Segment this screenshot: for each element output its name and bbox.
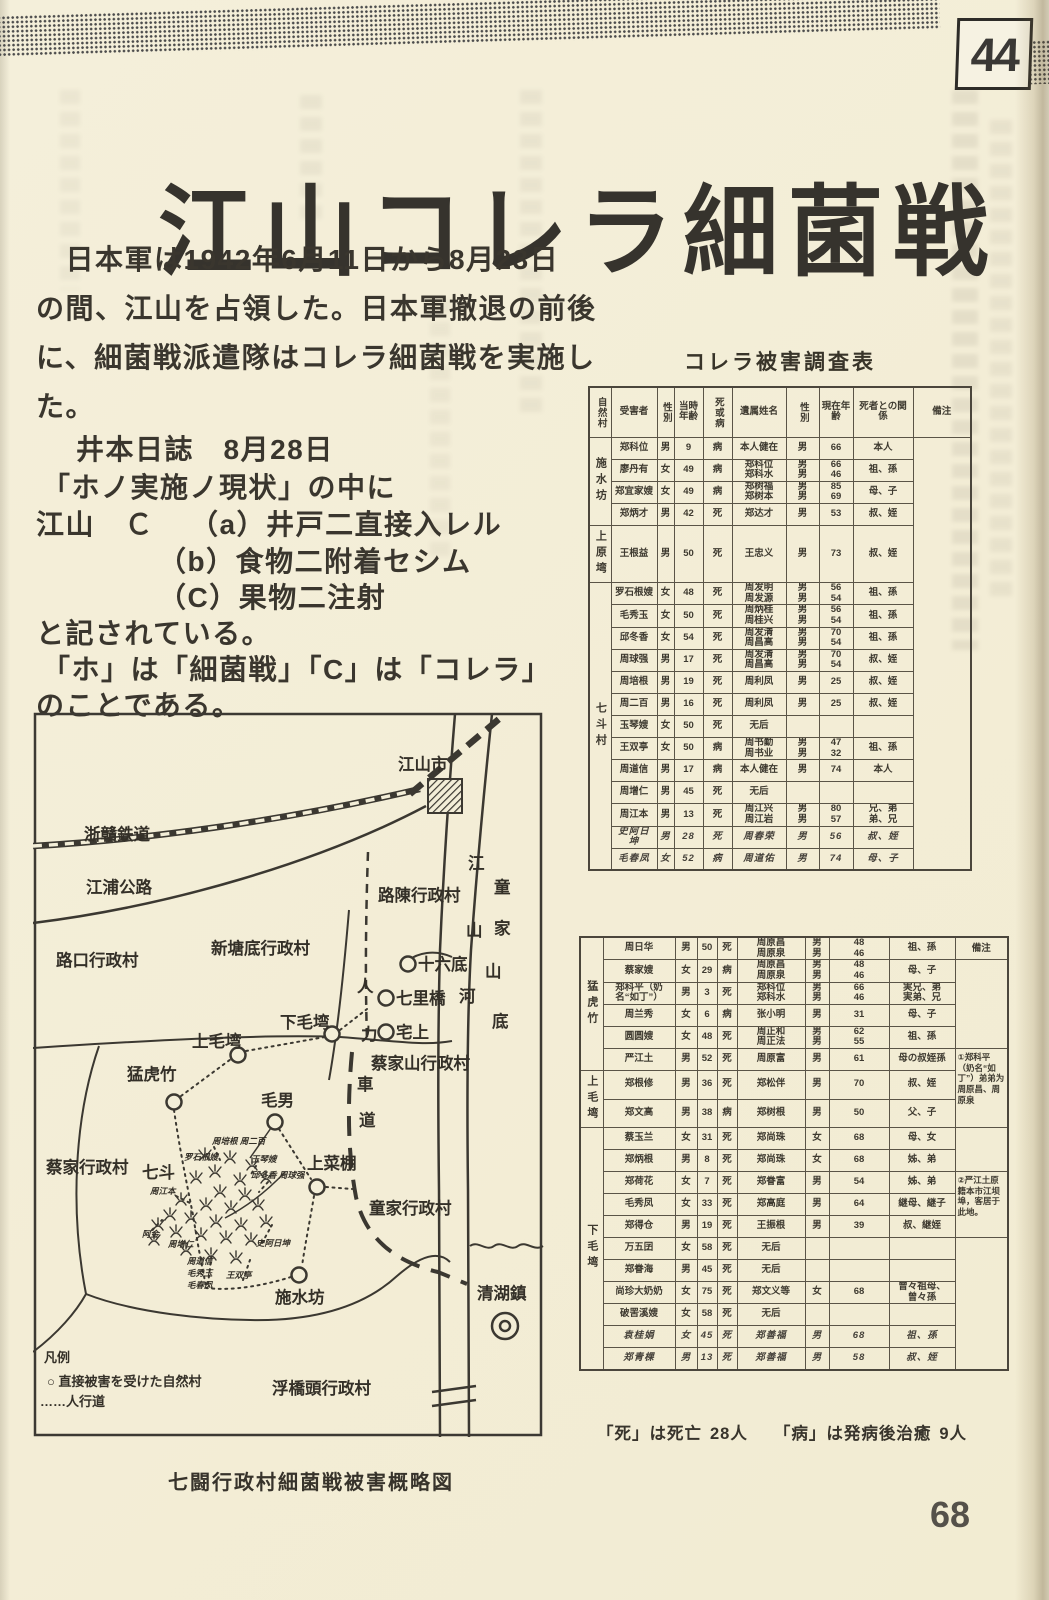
victim-sex: 女 <box>657 716 674 738</box>
grave-mound-symbol <box>200 1198 212 1210</box>
survivor-age <box>829 1304 889 1326</box>
survivor-names: 郑眷富 <box>737 1172 805 1194</box>
survivor-names: 本人健在 <box>732 437 786 459</box>
victim-age: 28 <box>674 826 703 848</box>
cart-road-label-char: 力 <box>361 1024 378 1044</box>
survivor-sex: 男男 <box>786 627 819 649</box>
victim-sex: 男 <box>675 937 697 960</box>
survivor-age: 8057 <box>819 804 853 826</box>
survivor-names: 周道佑 <box>732 848 786 870</box>
column-header: 死者との関係 <box>853 387 913 437</box>
fate: 死 <box>703 526 732 583</box>
survivor-names: 郑科位郑科水 <box>737 982 805 1004</box>
village-group-label: 上毛塆 <box>580 1071 603 1128</box>
grave-mound-symbol <box>235 1218 247 1230</box>
table-row: 郑青棵男13死郑善福男58叔、姪 <box>580 1348 1008 1370</box>
fate: 死 <box>717 1049 737 1071</box>
survivor-names: 周发清周昌高 <box>732 627 786 649</box>
survivor-age <box>819 716 853 738</box>
victim-age: 17 <box>674 760 703 782</box>
grave-mound-symbol <box>225 1201 237 1213</box>
town-double-circle <box>492 1313 518 1339</box>
region-label: 蔡家行政村 <box>45 1157 129 1177</box>
survivor-names: 无后 <box>737 1238 805 1260</box>
jiangshan-city-marker <box>428 779 462 813</box>
victim-name: 蔡家嫂 <box>603 960 675 982</box>
fate: 死 <box>717 1026 737 1048</box>
victim-name: 周江本 <box>611 804 657 826</box>
survivor-sex: 女 <box>805 1150 829 1172</box>
fate: 病 <box>703 481 732 503</box>
victim-name: 郑炳根 <box>603 1150 675 1172</box>
diary-item-label: （a） <box>190 509 266 540</box>
relation: 叔、姪 <box>853 694 913 716</box>
fate: 死 <box>717 982 737 1004</box>
fate: 死 <box>703 605 732 627</box>
footpath-dotted <box>302 1196 314 1266</box>
damage-map: 江山市浙贛鉄道江浦公路路陳行政村路口行政村新塘底行政村蔡家山行政村蔡家行政村七斗… <box>33 712 545 1440</box>
victim-sex: 男 <box>657 649 674 671</box>
notes-cell: ①郑科平（奶名“如丁”）弟弟为周原昌、周原泉 <box>955 1049 1008 1128</box>
victim-age: 6 <box>697 1004 717 1026</box>
victim-age: 8 <box>697 1150 717 1172</box>
fate: 死 <box>717 1128 737 1150</box>
victim-sex: 男 <box>657 804 674 826</box>
river-label-char: 江 <box>468 854 485 873</box>
victim-name: 郑眷海 <box>603 1260 675 1282</box>
victim-name: 郑得仓 <box>603 1216 675 1238</box>
survivor-names: 郑善福 <box>737 1348 805 1370</box>
river-label-char: 河 <box>459 987 476 1006</box>
victim-name: 周日华 <box>603 937 675 960</box>
line-label: 浙贛鉄道 <box>84 824 151 844</box>
notes-cell: 備注 <box>955 937 1008 960</box>
illness-label: 「病」は発病後治癒 <box>774 1425 932 1443</box>
diary-list-line-a: 江山 Ｃ（a）井戸二直接入レル <box>36 503 502 543</box>
footpath-dotted <box>181 1059 231 1096</box>
fate: 病 <box>717 1004 737 1026</box>
victim-age: 19 <box>674 672 703 694</box>
survivor-names: 周原富 <box>737 1049 805 1071</box>
victim-age: 54 <box>674 627 703 649</box>
survivor-names: 本人健在 <box>732 760 786 782</box>
survivor-names: 周发清周昌高 <box>732 649 786 671</box>
survivor-names: 郑文义等 <box>737 1282 805 1304</box>
cluster-victim-name: 周培根 周二百 <box>211 1136 267 1146</box>
cluster-victim-name: 毛春凤 <box>187 1280 214 1290</box>
survivor-sex: 男 <box>805 1194 829 1216</box>
map-caption: 七闘行政村細菌戦被害概略図 <box>168 1466 454 1495</box>
village-circle <box>379 1025 394 1040</box>
victim-name: 万五囝 <box>603 1238 675 1260</box>
survivor-names: 郑尚珠 <box>737 1128 805 1150</box>
chapter-number: 44 <box>970 27 1018 82</box>
cluster-victim-name: 毛秀玉 <box>187 1268 214 1278</box>
table-header-row: 自然村受害者性別当時年齢死或病遺属姓名性別現在年齢死者との関係備注 <box>589 387 971 437</box>
column-header: 備注 <box>913 387 971 437</box>
survivor-sex: 男 <box>805 1099 829 1128</box>
victim-age: 13 <box>697 1348 717 1370</box>
victim-sex: 男 <box>675 1049 697 1071</box>
survivor-age: 7054 <box>819 649 853 671</box>
survivor-sex: 男男 <box>805 960 829 982</box>
victim-sex: 女 <box>657 738 674 760</box>
survivor-sex: 男男 <box>805 982 829 1004</box>
survivor-sex: 男男 <box>805 937 829 960</box>
survivor-names: 郑善福 <box>737 1326 805 1348</box>
victim-age: 38 <box>697 1099 717 1128</box>
survivor-sex: 男 <box>805 1004 829 1026</box>
page-number: 68 <box>930 1494 970 1536</box>
map-frame <box>35 714 541 1435</box>
death-count: 28人 <box>710 1425 748 1443</box>
survivor-sex: 男 <box>805 1216 829 1238</box>
notes-cell <box>913 437 971 870</box>
survivor-age: 74 <box>819 848 853 870</box>
victim-sex: 男 <box>657 760 674 782</box>
cluster-victim-name: 周江本 <box>149 1186 177 1196</box>
grave-mound-symbol <box>234 1173 246 1185</box>
notes-cell <box>955 1128 1008 1172</box>
table-row: 袁桂娟女45死郑善福男68祖、孫 <box>580 1326 1008 1348</box>
victim-age: 45 <box>697 1260 717 1282</box>
cluster-victim-name: 王双亭 <box>226 1270 253 1280</box>
halftone-band <box>0 0 940 58</box>
village-label: 毛男 <box>261 1090 294 1110</box>
relation: 母、女 <box>889 1128 955 1150</box>
victim-sex: 女 <box>675 1194 697 1216</box>
column-header: 性別 <box>657 387 674 437</box>
survivor-names: 周发明周发源 <box>732 583 786 605</box>
fate: 死 <box>703 694 732 716</box>
stream-wavy-line <box>470 1244 543 1247</box>
page-left-edge-shadow <box>0 0 10 1600</box>
victim-age: 7 <box>697 1172 717 1194</box>
grave-mound-symbol <box>185 1211 197 1223</box>
diary-outro: と記されている。 <box>36 612 271 652</box>
village-label: 宅上 <box>396 1022 429 1042</box>
survivor-age: 58 <box>829 1348 889 1370</box>
relation: 祖、孫 <box>853 583 913 605</box>
survey-table: 猛虎竹周日华男50死周原昌周原泉男男4846祖、孫備注蔡家嫂女29病周原昌周原泉… <box>579 936 1009 1371</box>
survivor-sex <box>805 1238 829 1260</box>
survivor-age: 5654 <box>819 605 853 627</box>
survivor-names: 无后 <box>732 716 786 738</box>
victim-name: 王根益 <box>611 526 657 583</box>
paragraph-line: の間、江山を占領した。日本軍撤退の前後 <box>36 287 597 327</box>
survivor-names: 郑尚珠 <box>737 1150 805 1172</box>
village-group-label: 上原塆 <box>589 526 611 583</box>
column-header: 死或病 <box>703 387 732 437</box>
victim-name: 廖丹有 <box>611 459 657 481</box>
survivor-names: 周原昌周原泉 <box>737 960 805 982</box>
fate: 死 <box>703 716 732 738</box>
diary-item-text: 果物二注射 <box>239 582 387 613</box>
survivor-sex: 男 <box>786 504 819 526</box>
grave-mound-symbol <box>214 1185 226 1197</box>
victim-age: 29 <box>697 960 717 982</box>
survivor-sex: 男 <box>786 437 819 459</box>
scanned-book-page: 44 江山コレラ細菌戦 日本軍は1942年6月11日から8月23日 の間、江山を… <box>0 0 1049 1600</box>
region-label: 七斗 <box>142 1163 175 1182</box>
survivor-age: 25 <box>819 672 853 694</box>
relation: 兄、弟弟、兄 <box>853 804 913 826</box>
survivor-names: 郑松伴 <box>737 1071 805 1100</box>
column-header: 当時年齢 <box>674 387 703 437</box>
survivor-sex: 男 <box>805 1348 829 1370</box>
victim-sex: 男 <box>675 1216 697 1238</box>
relation <box>889 1260 955 1282</box>
river-label-char: 童 <box>494 877 511 897</box>
survivor-sex <box>805 1304 829 1326</box>
survivor-age: 56 <box>819 826 853 848</box>
table-footnote: 「死」は死亡28人「病」は発病後治癒9人 <box>597 1420 975 1444</box>
survivor-sex: 男 <box>786 848 819 870</box>
survivor-names: 郑达才 <box>732 504 786 526</box>
relation: 祖、孫 <box>853 605 913 627</box>
fate: 死 <box>703 804 732 826</box>
fate: 死 <box>717 1238 737 1260</box>
village-group-label: 下毛塆 <box>580 1128 603 1370</box>
victim-name: 郑炳才 <box>611 504 657 526</box>
grave-mound-symbol <box>170 1225 182 1237</box>
cluster-victim-name: 邱冬香 周球强 <box>251 1170 306 1180</box>
village-label: 上菜棚 <box>307 1153 357 1173</box>
victim-age: 45 <box>697 1326 717 1348</box>
survivor-sex: 男男 <box>786 459 819 481</box>
relation: 祖、孫 <box>853 738 913 760</box>
victim-age: 48 <box>674 583 703 605</box>
fate: 死 <box>717 1071 737 1100</box>
victim-age: 45 <box>674 782 703 804</box>
cart-road-label-char: 道 <box>359 1110 376 1130</box>
cart-road-label-char: 車 <box>357 1074 374 1094</box>
survivor-age: 68 <box>829 1326 889 1348</box>
victim-name: 郑宜家嫂 <box>611 481 657 503</box>
table-row: 万五囝女58死无后 <box>580 1238 1008 1260</box>
fate: 死 <box>717 1194 737 1216</box>
survey-table-title: コレラ被害調査表 <box>684 346 876 376</box>
survivor-sex: 男 <box>805 1172 829 1194</box>
survivor-age: 6255 <box>829 1026 889 1048</box>
column-header: 現在年齢 <box>819 387 853 437</box>
survivor-age: 4846 <box>829 937 889 960</box>
table-row: 猛虎竹周日华男50死周原昌周原泉男男4846祖、孫備注 <box>580 937 1008 960</box>
victim-name: 周二百 <box>611 694 657 716</box>
survivor-age <box>829 1260 889 1282</box>
relation: 叔、姪 <box>889 1071 955 1100</box>
village-circle <box>310 1180 325 1195</box>
region-label: 浮橋頭行政村 <box>272 1378 372 1398</box>
relation <box>853 716 913 738</box>
victim-age: 36 <box>697 1071 717 1100</box>
survivor-names: 周江兴周江岩 <box>732 804 786 826</box>
survivor-sex: 男男 <box>786 738 819 760</box>
victim-age: 50 <box>674 738 703 760</box>
table-row: 郑炳根男8死郑尚珠女68姊、弟 <box>580 1150 1008 1172</box>
survivor-sex: 女 <box>805 1282 829 1304</box>
relation: 母、子 <box>889 1004 955 1026</box>
table-row: 尚珍大奶奶女75死郑文义等女68曾々祖母、曾々孫 <box>580 1282 1008 1304</box>
victim-sex: 女 <box>675 1004 697 1026</box>
victim-sex: 女 <box>675 1282 697 1304</box>
victim-name: 郑青棵 <box>603 1348 675 1370</box>
survivor-names: 王振根 <box>737 1216 805 1238</box>
victim-name: 尚珍大奶奶 <box>603 1282 675 1304</box>
survivor-names: 周正和周正法 <box>737 1026 805 1048</box>
survivor-sex: 男男 <box>786 481 819 503</box>
relation: 叔、姪 <box>889 1348 955 1370</box>
diary-heading: 井本日誌 8月28日 <box>76 428 334 468</box>
village-label: 猛虎竹 <box>126 1064 177 1084</box>
survivor-sex: 男男 <box>805 1026 829 1048</box>
relation: 姊、弟 <box>889 1150 955 1172</box>
fate: 死 <box>717 1150 737 1172</box>
village-label: 下毛塆 <box>280 1012 330 1032</box>
river-label-char: 山 <box>466 921 483 940</box>
village-circle <box>268 1115 283 1130</box>
village-group-label: 施水坊 <box>589 437 611 526</box>
survivor-sex: 男 <box>786 526 819 583</box>
victim-name: 袁桂娟 <box>603 1326 675 1348</box>
paragraph-line: 日本軍は1942年6月11日から8月23日 <box>36 238 559 278</box>
victim-sex: 男 <box>675 1348 697 1370</box>
victim-age: 9 <box>674 437 703 459</box>
relation: 叔、姪 <box>853 672 913 694</box>
survivor-sex <box>786 716 819 738</box>
relation: 曾々祖母、曾々孫 <box>889 1282 955 1304</box>
fate: 死 <box>703 672 732 694</box>
victim-name: 史阿日坤 <box>611 826 657 848</box>
village-circle <box>401 957 416 972</box>
relation <box>853 782 913 804</box>
grave-mound-symbol <box>164 1208 176 1220</box>
survivor-sex: 男男 <box>786 605 819 627</box>
victim-sex: 女 <box>657 481 674 503</box>
fate: 死 <box>717 1282 737 1304</box>
table-row: 郑眷海男45死无后 <box>580 1260 1008 1282</box>
victim-age: 49 <box>674 481 703 503</box>
diary-list-line-c: （C）果物二注射 <box>158 576 386 616</box>
victim-name: 周兰秀 <box>603 1004 675 1026</box>
cart-road-label-char: 人 <box>357 977 374 996</box>
grave-mound-symbol <box>190 1171 202 1183</box>
survivor-names: 郑树福郑树本 <box>732 481 786 503</box>
survivor-age: 68 <box>829 1282 889 1304</box>
survivor-names: 周原昌周原泉 <box>737 937 805 960</box>
fate: 死 <box>703 649 732 671</box>
table-row: 下毛塆蔡玉兰女31死郑尚珠女68母、女 <box>580 1128 1008 1150</box>
region-label: 新塘底行政村 <box>211 938 311 958</box>
survivor-age: 54 <box>829 1172 889 1194</box>
survivor-names: 张小明 <box>737 1004 805 1026</box>
victim-age: 31 <box>697 1128 717 1150</box>
victim-name: 周增仁 <box>611 782 657 804</box>
victim-name: 周球强 <box>611 649 657 671</box>
fate: 病 <box>717 1099 737 1128</box>
survivor-age: 64 <box>829 1194 889 1216</box>
cluster-victim-name: 史阿日坤 <box>256 1238 292 1248</box>
survivor-age: 5654 <box>819 583 853 605</box>
diary-item-text: 食物二附着セシム <box>236 546 472 577</box>
relation: 叔、姪 <box>853 649 913 671</box>
survivor-names: 周利凤 <box>732 672 786 694</box>
victim-age: 50 <box>674 605 703 627</box>
victim-sex: 女 <box>675 1026 697 1048</box>
relation: 本人 <box>853 760 913 782</box>
fate: 病 <box>717 960 737 982</box>
survivor-age: 68 <box>829 1150 889 1172</box>
survivor-sex: 男 <box>786 694 819 716</box>
table-row: 圆圆嫂女48死周正和周正法男男6255祖、孫 <box>580 1026 1008 1048</box>
relation: 祖、孫 <box>889 1326 955 1348</box>
survivor-age: 73 <box>819 526 853 583</box>
relation: 祖、孫 <box>853 459 913 481</box>
village-circle <box>379 991 394 1006</box>
relation: 継母、継子 <box>889 1194 955 1216</box>
notes-cell <box>955 1238 1008 1370</box>
survivor-sex <box>805 1260 829 1282</box>
survivor-sex: 男 <box>786 672 819 694</box>
river-left-bank <box>438 714 455 1437</box>
victim-name: 严江土 <box>603 1049 675 1071</box>
victim-name: 郑根修 <box>603 1071 675 1100</box>
survivor-names: 周春荣 <box>732 826 786 848</box>
fate: 病 <box>703 437 732 459</box>
victim-age: 50 <box>674 526 703 583</box>
victim-age: 52 <box>697 1049 717 1071</box>
victim-age: 48 <box>697 1026 717 1048</box>
fate: 死 <box>717 1326 737 1348</box>
grave-mound-symbol <box>239 1188 251 1200</box>
survivor-age <box>829 1238 889 1260</box>
region-outline <box>86 1256 450 1320</box>
survivor-names: 周炳桂周桂兴 <box>732 605 786 627</box>
fate: 病 <box>703 459 732 481</box>
victim-sex: 男 <box>657 504 674 526</box>
fate: 死 <box>703 782 732 804</box>
survivor-age: 39 <box>829 1216 889 1238</box>
survivor-age: 8569 <box>819 481 853 503</box>
fate: 病 <box>703 738 732 760</box>
region-label: 路陳行政村 <box>378 885 461 905</box>
survivor-age: 74 <box>819 760 853 782</box>
victim-sex: 男 <box>657 672 674 694</box>
fate: 死 <box>717 1172 737 1194</box>
river-label-char: 底 <box>492 1011 509 1031</box>
survivor-sex <box>786 782 819 804</box>
footpath-dotted <box>246 1037 325 1051</box>
survivor-age: 7054 <box>819 627 853 649</box>
fate: 死 <box>703 826 732 848</box>
survivor-sex: 男 <box>786 826 819 848</box>
survivor-age: 4846 <box>829 960 889 982</box>
column-header: 性別 <box>786 387 819 437</box>
relation: 母、子 <box>889 960 955 982</box>
village-group-label: 七斗村 <box>589 583 611 871</box>
survivor-age: 6646 <box>829 982 889 1004</box>
illness-count: 9人 <box>939 1425 967 1443</box>
grave-mound-symbol <box>220 1231 232 1243</box>
fate: 死 <box>717 1216 737 1238</box>
region-label: 童家行政村 <box>369 1198 452 1218</box>
table-row: 上毛塆郑根修男36死郑松伴男70叔、姪 <box>580 1071 1008 1100</box>
grave-mound-symbol <box>175 1193 187 1205</box>
victim-name: 毛春凤 <box>611 848 657 870</box>
victim-age: 58 <box>697 1304 717 1326</box>
victim-name: 毛秀玉 <box>611 605 657 627</box>
victim-name: 邱冬香 <box>611 627 657 649</box>
